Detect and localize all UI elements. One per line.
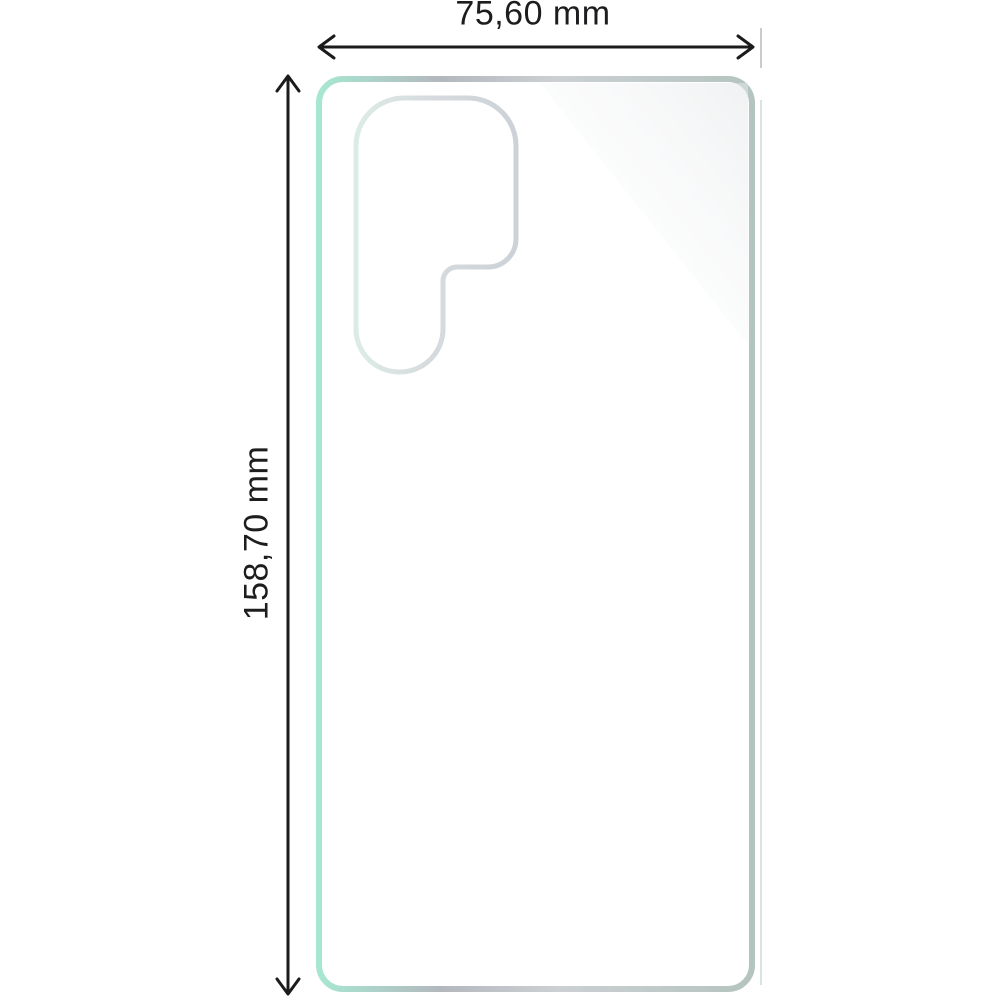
width-dimension-arrow [319, 36, 753, 58]
height-dimension-arrow [277, 76, 299, 994]
diagram-graphics [0, 0, 1000, 1000]
height-dimension-label: 158,70 mm [238, 446, 277, 621]
width-dimension-label: 75,60 mm [455, 0, 610, 34]
product-dimension-diagram: 75,60 mm 158,70 mm [0, 0, 1000, 1000]
